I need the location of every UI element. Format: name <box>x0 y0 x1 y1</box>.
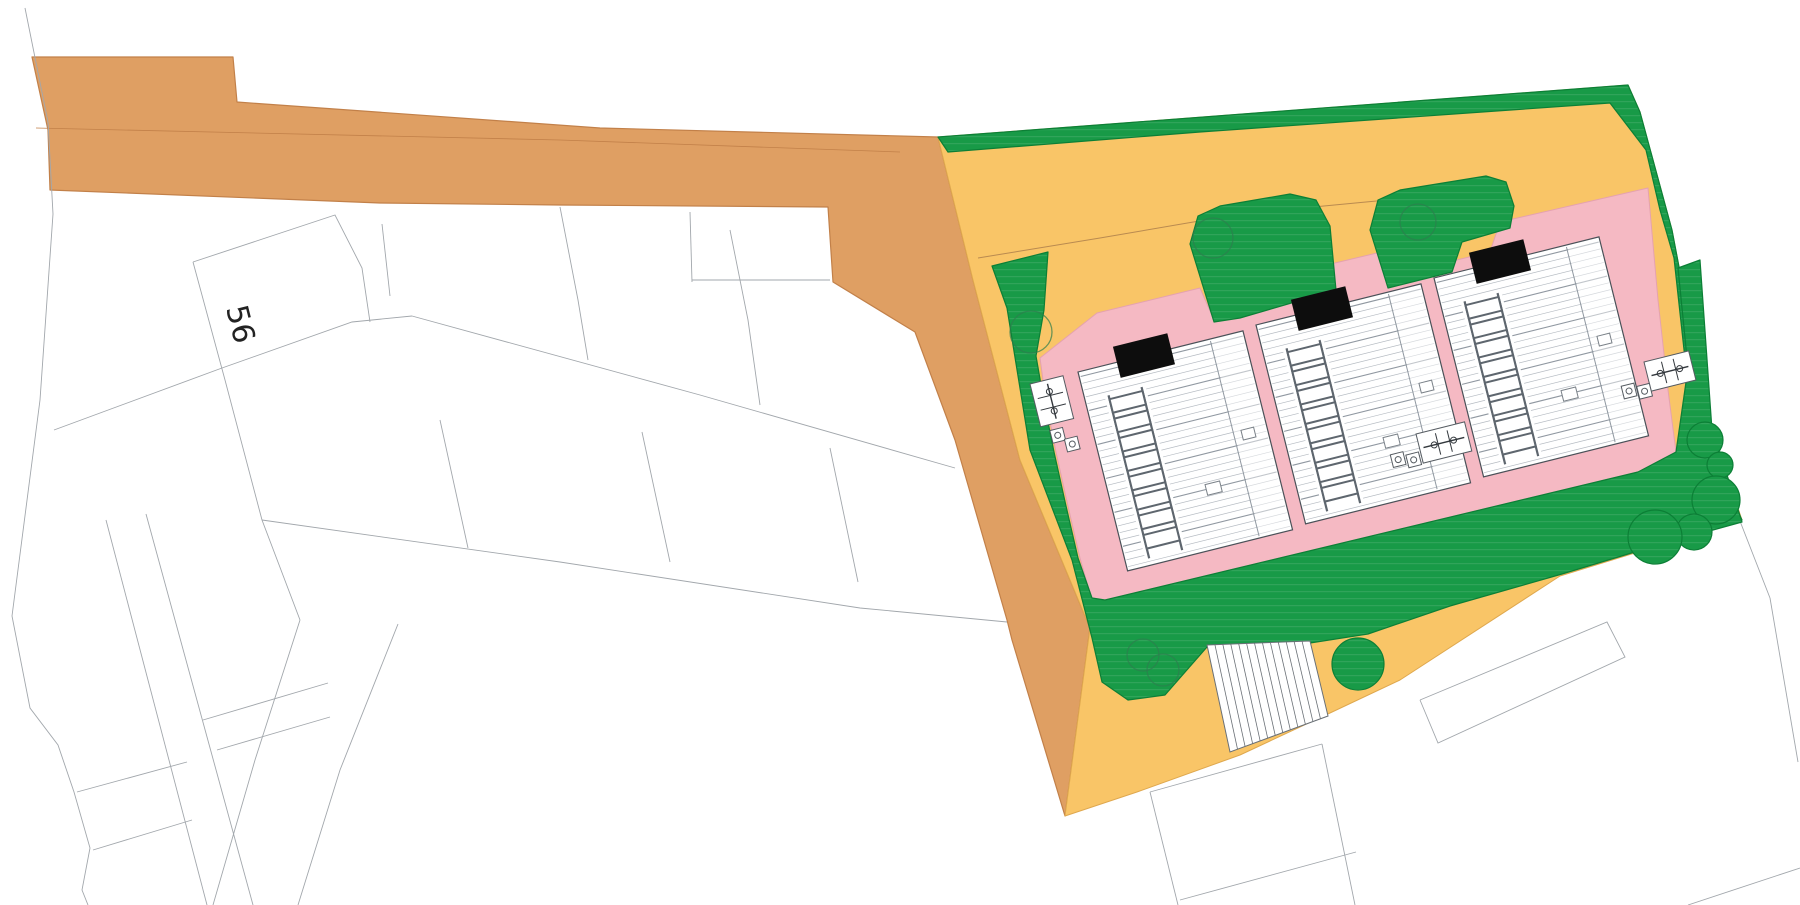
site-plan-drawing: 56 <box>0 0 1800 905</box>
plot-number-label: 56 <box>218 301 261 347</box>
plot-boundary-line <box>217 717 330 750</box>
plot-boundary-line <box>54 368 222 430</box>
shrub-circle <box>1332 638 1384 690</box>
plot-boundary-line <box>382 224 390 296</box>
plot-boundary-line <box>106 520 207 905</box>
plot-boundary-line <box>12 214 53 616</box>
plot-boundary-line <box>1770 598 1798 762</box>
plot-boundary-line <box>690 212 692 282</box>
road <box>32 57 1090 816</box>
shrub-circle <box>1707 452 1733 478</box>
plot-boundary-line <box>560 207 588 360</box>
road-layer <box>32 57 1090 816</box>
plot-boundary-line <box>440 420 468 548</box>
plot-boundary-line <box>1150 792 1178 905</box>
plot-boundary-line <box>730 230 760 405</box>
bin <box>1406 452 1422 468</box>
plot-boundary-line <box>213 620 300 905</box>
plot-boundary-line <box>262 520 1007 622</box>
plot-boundary-line <box>1180 852 1356 900</box>
plot-boundary-line <box>203 683 328 720</box>
bin <box>1621 383 1637 399</box>
plot-boundary-line <box>830 448 858 582</box>
bin-store <box>1050 427 1066 443</box>
plan-layers: 56 <box>12 8 1800 905</box>
plot-boundary-line <box>1738 516 1770 598</box>
bin <box>1050 427 1066 443</box>
plot-boundary-line <box>642 432 670 562</box>
site-plan-canvas: 56 <box>0 0 1800 905</box>
bin-store <box>1621 383 1637 399</box>
plot-boundary-line <box>77 762 187 792</box>
bin <box>1064 436 1080 452</box>
bin-store <box>1064 436 1080 452</box>
plot-boundary-line <box>412 316 955 468</box>
plot-boundary-line <box>1688 868 1800 905</box>
plot-number-label-layer: 56 <box>218 301 261 347</box>
bin <box>1637 383 1653 399</box>
plot-boundary-line <box>193 215 370 322</box>
plot-boundary-line <box>298 624 398 905</box>
plot-boundary-line <box>12 616 90 905</box>
plot-boundary-line <box>93 820 192 850</box>
bin <box>1390 452 1406 468</box>
bin-store <box>1390 452 1406 468</box>
shrub-circle <box>1628 510 1682 564</box>
plot-boundary-line <box>1322 744 1355 905</box>
bin-store <box>1406 452 1422 468</box>
bin-store <box>1637 383 1653 399</box>
